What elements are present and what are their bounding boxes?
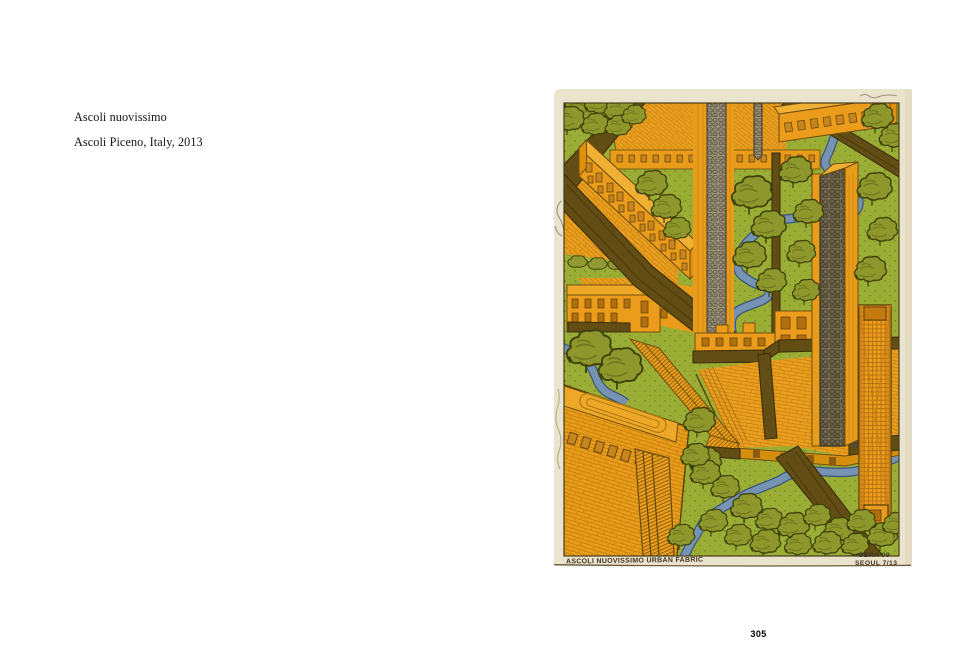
svg-text:OBRA 09: OBRA 09 — [858, 552, 890, 559]
svg-text:SEOUL 7/13: SEOUL 7/13 — [855, 560, 897, 567]
